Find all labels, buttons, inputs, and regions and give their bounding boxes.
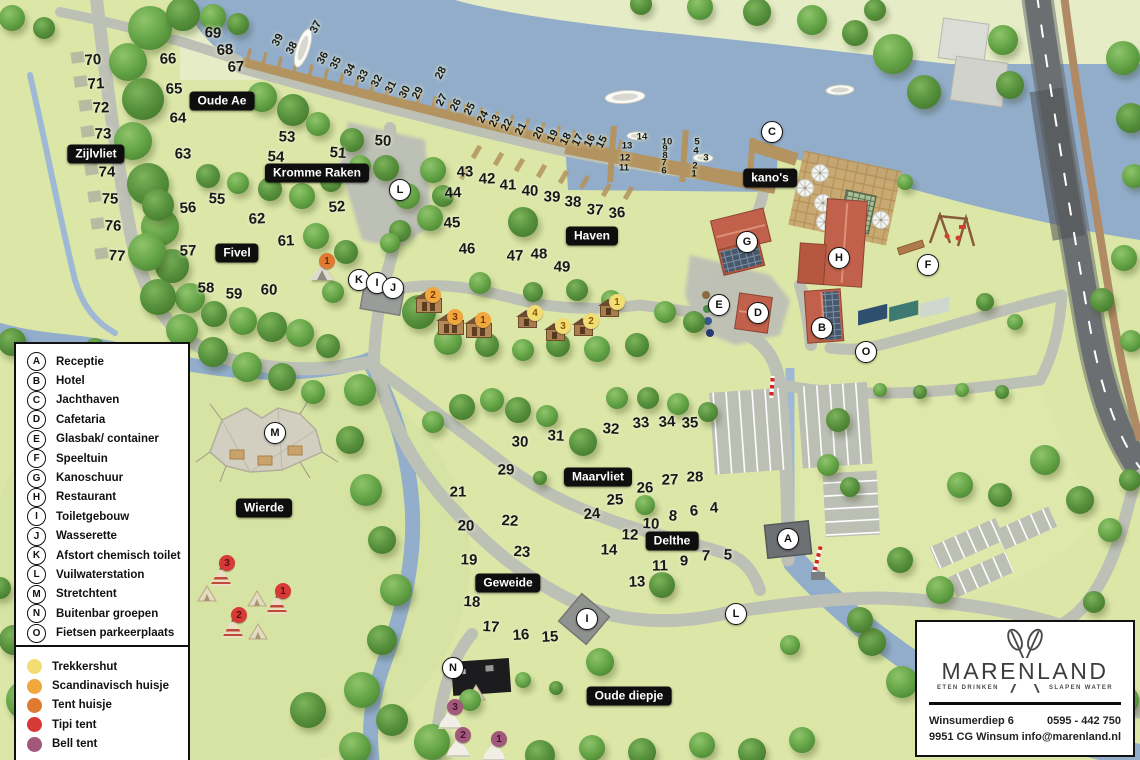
legend-item-label: Toiletgebouw: [56, 511, 129, 523]
pitch-number: 65: [166, 80, 183, 97]
pitch-number: 68: [216, 41, 234, 59]
pitch-number: 10: [642, 515, 660, 533]
legend-item-label: Kanoschuur: [56, 472, 123, 484]
pitch-number: 13: [628, 573, 645, 591]
legend-color-dot: [27, 659, 42, 674]
accommodation-badge: 1: [319, 253, 335, 269]
legend-accommodation-label: Trekkershut: [52, 661, 117, 673]
pitch-number: 27: [662, 471, 679, 488]
legend-item-a: AReceptie: [16, 352, 188, 371]
pitch-number: 73: [95, 125, 112, 142]
region-label: Haven: [566, 227, 618, 246]
legend-accommodation-trekkershut: Trekkershut: [16, 657, 188, 676]
legend-item-label: Speeltuin: [56, 453, 108, 465]
marenland-campground-map: ZijlvlietOude AeKromme RakenFivelHavenka…: [0, 0, 1140, 760]
pitch-number: 52: [328, 198, 346, 216]
region-label: kano's: [743, 169, 797, 188]
legend-accommodation-tipi: Tipi tent: [16, 715, 188, 734]
legend-letter-badge: I: [27, 507, 46, 526]
legend-item-g: GKanoschuur: [16, 468, 188, 487]
pitch-number: 44: [444, 184, 462, 202]
accommodation-trekkershut: 3: [546, 329, 565, 341]
legend-letter-badge: B: [27, 372, 46, 391]
pitch-number: 17: [482, 618, 500, 636]
pitch-number: 56: [179, 199, 197, 217]
pitch-number: 74: [99, 164, 116, 181]
accommodation-badge: 3: [219, 555, 235, 571]
legend-item-f: FSpeeltuin: [16, 449, 188, 468]
address: Winsumerdiep 6 9951 CG Winsum: [929, 713, 1019, 745]
facility-marker-l: L: [725, 603, 747, 625]
pitch-number: 60: [260, 281, 277, 299]
region-label: Maarvliet: [564, 468, 632, 487]
email-address: info@marenland.nl: [1022, 729, 1121, 745]
legend-letter-badge: F: [27, 449, 46, 468]
pitch-number: 37: [586, 201, 604, 219]
accommodation-badge: 1: [475, 312, 491, 328]
legend-item-k: KAfstort chemisch toilet: [16, 546, 188, 565]
legend-letter-badge: J: [27, 527, 46, 546]
address-city: 9951 CG Winsum: [929, 729, 1019, 745]
facility-marker-b: B: [811, 317, 833, 339]
legend-letter-badge: M: [27, 585, 46, 604]
region-label: Wierde: [236, 499, 292, 518]
accommodation-bell: 2: [446, 738, 470, 757]
facility-marker-e: E: [708, 294, 730, 316]
pitch-number: 25: [606, 491, 624, 509]
facility-marker-d: D: [747, 302, 769, 324]
pitch-number: 51: [329, 144, 347, 162]
region-label: Geweide: [475, 574, 540, 593]
pitch-number: 57: [180, 242, 197, 259]
pitch-number: 19: [460, 551, 477, 569]
legend-accommodations: TrekkershutScandinavisch huisjeTent huis…: [14, 645, 190, 760]
contact: 0595 - 442 750 info@marenland.nl: [1022, 713, 1121, 745]
pitch-number: 9: [680, 553, 688, 570]
legend-letter-badge: D: [27, 410, 46, 429]
pitch-number: 77: [108, 247, 126, 265]
legend-accommodation-tenthuisje: Tent huisje: [16, 696, 188, 715]
pitch-number: 55: [208, 190, 226, 208]
pitch-number: 30: [511, 433, 528, 451]
pitch-number: 12: [621, 526, 638, 544]
pitch-number: 33: [632, 414, 650, 432]
legend-item-label: Jachthaven: [56, 394, 119, 406]
pitch-number: 29: [498, 461, 515, 478]
accommodation-trekkershut: 4: [518, 316, 537, 328]
accommodation-tipi: 1: [266, 594, 288, 614]
pitch-number: 64: [170, 110, 187, 127]
berth-number: 35: [328, 55, 344, 71]
accommodation-tipi: 2: [222, 618, 244, 638]
legend-color-dot: [27, 717, 42, 732]
accommodation-badge: 1: [609, 294, 625, 310]
pitch-number: 76: [104, 217, 121, 235]
pitch-number: 46: [458, 240, 475, 258]
marina-berth-number: 14: [637, 132, 648, 143]
legend-accommodation-bell: Bell tent: [16, 735, 188, 754]
accommodation-scandinavisch: 1: [466, 323, 492, 338]
accommodation-badge: 2: [583, 313, 599, 329]
accommodation-badge: 2: [455, 727, 471, 743]
legend-color-dot: [27, 679, 42, 694]
legend-item-m: MStretchtent: [16, 585, 188, 604]
marina-berth-number: 1: [691, 169, 696, 180]
pitch-number: 31: [547, 427, 565, 445]
legend-accommodation-label: Tipi tent: [52, 719, 97, 731]
facility-marker-m: M: [264, 422, 286, 444]
region-label: Fivel: [215, 244, 258, 263]
pitch-number: 26: [636, 479, 653, 497]
accommodation-bell: 3: [438, 710, 462, 729]
accommodation-tipi: 3: [210, 566, 232, 586]
accommodation-bell: 1: [482, 742, 506, 760]
pitch-number: 41: [500, 177, 517, 194]
facility-marker-o: O: [855, 341, 877, 363]
region-label: Oude Ae: [190, 92, 255, 111]
facility-marker-h: H: [828, 247, 850, 269]
legend-item-label: Wasserette: [56, 530, 117, 542]
pitch-number: 58: [198, 280, 215, 297]
legend-item-label: Vuilwaterstation: [56, 569, 144, 581]
pitch-number: 4: [709, 499, 718, 516]
pitch-number: 49: [554, 258, 571, 275]
legend-item-label: Stretchtent: [56, 588, 117, 600]
info-card: MARENLAND ETEN DRINKEN SLAPEN WATER Wins…: [915, 620, 1135, 757]
marina-berth-number: 3: [703, 153, 708, 164]
legend-letter-badge: L: [27, 565, 46, 584]
legend-item-label: Cafetaria: [56, 414, 105, 426]
legend-letter-badge: G: [27, 469, 46, 488]
legend-letter-badge: O: [27, 624, 46, 643]
pitch-number: 34: [658, 413, 676, 431]
legend-item-e: EGlasbak/ container: [16, 430, 188, 449]
pitch-number: 70: [84, 51, 102, 69]
berth-number: 21: [513, 121, 529, 137]
facility-marker-j: J: [382, 277, 404, 299]
pitch-number: 11: [652, 557, 668, 574]
berth-number: 15: [594, 134, 610, 150]
brand-tagline-right: SLAPEN WATER: [1049, 685, 1113, 691]
pitch-number: 63: [175, 145, 192, 162]
legend-item-i: IToiletgebouw: [16, 507, 188, 526]
legend-accommodation-scandinavisch: Scandinavisch huisje: [16, 676, 188, 695]
pitch-number: 75: [102, 190, 119, 207]
pitch-number: 39: [543, 188, 560, 206]
berth-number: 29: [410, 85, 426, 101]
pitch-number: 14: [601, 541, 618, 558]
accommodation-badge: 4: [527, 305, 543, 321]
region-label: Kromme Raken: [265, 164, 369, 183]
pitch-number: 28: [687, 469, 704, 486]
region-label: Zijlvliet: [67, 145, 124, 164]
pitch-number: 5: [724, 546, 733, 563]
pitch-number: 35: [681, 414, 698, 432]
legend-accommodation-label: Bell tent: [52, 738, 97, 750]
pitch-number: 32: [602, 420, 620, 438]
pitch-number: 42: [479, 170, 496, 187]
pitch-number: 21: [450, 484, 467, 501]
legend-item-j: JWasserette: [16, 527, 188, 546]
pitch-number: 66: [159, 50, 176, 68]
pitch-number: 50: [374, 132, 392, 150]
pitch-number: 43: [456, 163, 473, 181]
legend-item-c: CJachthaven: [16, 391, 188, 410]
pitch-number: 72: [92, 99, 109, 117]
pitch-number: 22: [501, 512, 519, 530]
accommodation-badge: 3: [447, 309, 463, 325]
berth-number: 37: [308, 19, 324, 35]
legend-item-label: Fietsen parkeerplaats: [56, 627, 174, 639]
facility-marker-i: I: [576, 608, 598, 630]
facility-marker-n: N: [442, 657, 464, 679]
accommodation-badge: 1: [491, 731, 507, 747]
legend-item-label: Hotel: [56, 375, 85, 387]
facility-marker-a: A: [777, 528, 799, 550]
accommodation-scandinavisch: 3: [438, 320, 464, 335]
accommodation-badge: 1: [275, 583, 291, 599]
accommodation-scandinavisch: 2: [416, 298, 442, 313]
legend-letter-badge: C: [27, 391, 46, 410]
legend-letter-badge: H: [27, 488, 46, 507]
berth-number: 39: [270, 32, 286, 48]
accommodation-badge: 3: [555, 318, 571, 334]
legend-item-b: BHotel: [16, 371, 188, 390]
facility-marker-g: G: [736, 231, 758, 253]
address-street: Winsumerdiep 6: [929, 713, 1019, 729]
accommodation-badge: 2: [231, 607, 247, 623]
pitch-number: 8: [668, 507, 678, 525]
pitch-number: 53: [278, 128, 295, 146]
legend-letter-badge: K: [27, 546, 46, 565]
marina-berth-number: 4: [693, 146, 698, 157]
pitch-number: 16: [512, 626, 530, 644]
marina-berth-number: 11: [619, 163, 629, 174]
legend-item-label: Receptie: [56, 356, 104, 368]
pitch-number: 38: [564, 193, 582, 211]
facility-marker-l: L: [389, 179, 411, 201]
legend-item-label: Buitenbar groepen: [56, 608, 158, 620]
pitch-number: 48: [531, 246, 548, 263]
pitch-number: 20: [458, 517, 475, 534]
pitch-number: 7: [702, 547, 711, 564]
pitch-number: 45: [443, 214, 461, 232]
pitch-number: 23: [513, 543, 531, 561]
pitch-number: 24: [583, 505, 601, 523]
pitch-number: 62: [248, 210, 266, 228]
legend-item-o: OFietsen parkeerplaats: [16, 623, 188, 642]
accommodation-badge: 3: [447, 699, 463, 715]
brand-name: MARENLAND: [917, 658, 1133, 685]
pitch-number: 47: [507, 247, 524, 264]
accommodation-trekkershut: 1: [600, 305, 619, 317]
pitch-number: 69: [204, 24, 222, 42]
pitch-number: 67: [227, 58, 245, 76]
region-label: Delthe: [646, 532, 699, 551]
accommodation-tenthuisje: 1: [310, 264, 334, 280]
legend-color-dot: [27, 737, 42, 752]
berth-number: 38: [284, 40, 300, 56]
pitch-number: 15: [541, 628, 559, 646]
brand-logo: MARENLAND ETEN DRINKEN SLAPEN WATER: [917, 622, 1133, 700]
pitch-number: 59: [226, 285, 243, 302]
berth-number: 32: [369, 73, 385, 89]
marina-berth-number: 6: [661, 166, 666, 177]
accommodation-badge: 2: [425, 287, 441, 303]
legend-letter-badge: E: [27, 430, 46, 449]
legend-item-n: NBuitenbar groepen: [16, 604, 188, 623]
marina-berth-number: 13: [622, 141, 633, 152]
legend-item-l: LVuilwaterstation: [16, 565, 188, 584]
region-label: Oude diepje: [587, 687, 672, 706]
pitch-number: 36: [608, 204, 626, 222]
legend-item-label: Afstort chemisch toilet: [56, 550, 181, 562]
berth-number: 25: [462, 101, 478, 117]
legend-color-dot: [27, 698, 42, 713]
phone-number: 0595 - 442 750: [1022, 713, 1121, 729]
legend-item-h: HRestaurant: [16, 488, 188, 507]
pitch-number: 18: [463, 593, 481, 611]
accommodation-trekkershut: 2: [574, 324, 593, 336]
legend-accommodation-label: Scandinavisch huisje: [52, 680, 169, 692]
berth-number: 28: [433, 65, 449, 81]
legend-item-label: Glasbak/ container: [56, 433, 159, 445]
pitch-number: 71: [87, 75, 105, 93]
facility-marker-f: F: [917, 254, 939, 276]
pitch-number: 61: [277, 232, 294, 250]
legend-item-label: Restaurant: [56, 491, 116, 503]
legend-letter-badge: N: [27, 604, 46, 623]
pitch-number: 6: [689, 502, 699, 520]
facility-marker-c: C: [761, 121, 783, 143]
legend-letter-badge: A: [27, 352, 46, 371]
brand-tagline-left: ETEN DRINKEN: [937, 685, 999, 691]
legend-facilities: AReceptieBHotelCJachthavenDCafetariaEGla…: [14, 342, 190, 651]
pitch-number: 40: [522, 182, 539, 199]
legend-accommodation-label: Tent huisje: [52, 699, 112, 711]
legend-item-d: DCafetaria: [16, 410, 188, 429]
